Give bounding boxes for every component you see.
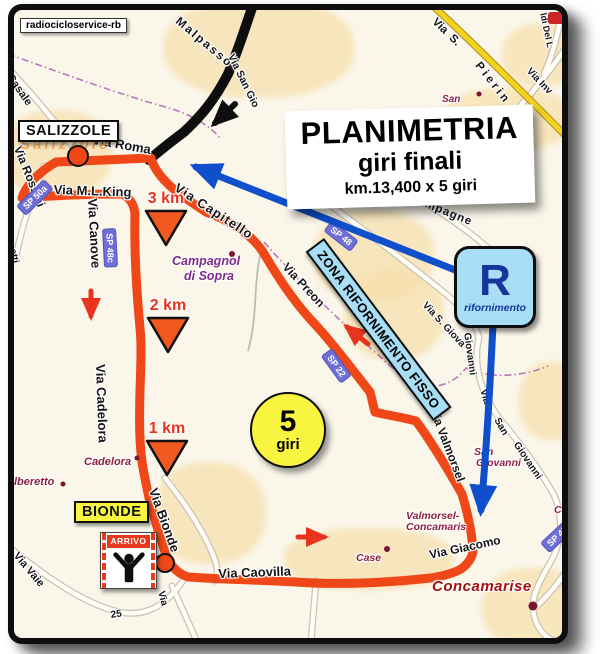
winner-icon	[110, 551, 148, 585]
street-label: etti	[8, 248, 21, 264]
place-label: Giovanni	[476, 457, 521, 469]
street-label: Via M.L.King	[53, 182, 131, 200]
street-label: San	[491, 416, 510, 437]
street-label: Via Giacomo	[428, 533, 502, 562]
finish-flag: ARRIVO	[100, 532, 157, 589]
watermark: radiocicloservice-rb	[20, 18, 127, 33]
town-box-bionde: BIONDE	[74, 501, 149, 523]
km-marker-triangle	[143, 208, 189, 248]
street-label: Via	[155, 590, 169, 607]
km-marker: 2 km	[136, 297, 200, 355]
road-shield: SP 48c	[102, 228, 118, 268]
street-label: Via S.	[430, 16, 463, 48]
map-frame: MalpassoVia San GioCasaleVia S.PierinVia…	[8, 4, 568, 644]
street-label: Giovanni	[461, 332, 478, 376]
km-marker-label: 2 km	[150, 297, 186, 315]
place-label: Cadelora	[84, 456, 131, 468]
street-label: Via Caovilla	[218, 563, 291, 581]
km-marker-triangle	[145, 315, 191, 355]
street-label: 25	[110, 608, 123, 620]
finish-post-right	[151, 533, 155, 588]
feed-station-box: R rifornimento	[454, 246, 536, 328]
feed-station-caption: rifornimento	[464, 302, 526, 314]
street-label: Via Cadelora	[93, 364, 111, 443]
km-marker-triangle	[144, 438, 190, 478]
place-label: di Sopra	[184, 269, 234, 283]
lap-count-number: 5	[280, 407, 297, 437]
start-point-dot	[67, 145, 89, 167]
place-label: Fo	[564, 428, 568, 440]
street-label: Via Canove	[85, 198, 104, 269]
place-label: Case	[356, 552, 381, 564]
lap-count-badge: 5 giri	[250, 392, 326, 468]
finish-point-dot	[155, 553, 175, 573]
street-label: Pierin	[473, 60, 513, 107]
place-label: Campagnol	[172, 254, 240, 268]
km-marker: 3 km	[134, 190, 198, 248]
finish-post-left	[102, 533, 106, 588]
road-shield: SP 22	[321, 348, 353, 384]
map-title: PLANIMETRIA	[289, 112, 530, 151]
street-label: Via Vaie	[11, 550, 47, 589]
street-label: Via San Gio	[225, 52, 261, 110]
title-box: PLANIMETRIA giri finali km.13,400 x 5 gi…	[285, 105, 536, 210]
place-label: lberetto	[14, 476, 54, 488]
place-label: Concamarise	[432, 578, 532, 595]
lap-count-unit: giri	[276, 437, 299, 454]
street-label: Casale	[8, 72, 34, 108]
street-label: Via	[477, 388, 492, 405]
course-map: MalpassoVia San GioCasaleVia S.PierinVia…	[14, 10, 562, 638]
place-label: Concamaris	[406, 521, 466, 533]
km-marker: 1 km	[135, 420, 199, 478]
lap-distance: km.13,400 x 5 giri	[291, 176, 531, 201]
place-label: San	[442, 94, 460, 105]
finish-banner: ARRIVO	[107, 535, 150, 548]
place-label: Cap	[554, 504, 568, 516]
feed-station-symbol: R	[479, 260, 511, 302]
road-shield: SP 48	[540, 520, 568, 554]
km-marker-label: 1 km	[149, 420, 185, 438]
street-label: Via Inv	[524, 66, 554, 97]
town-box-salizzole: SALIZZOLE	[18, 120, 119, 142]
km-marker-label: 3 km	[148, 190, 184, 208]
red-road-shield	[548, 12, 568, 24]
